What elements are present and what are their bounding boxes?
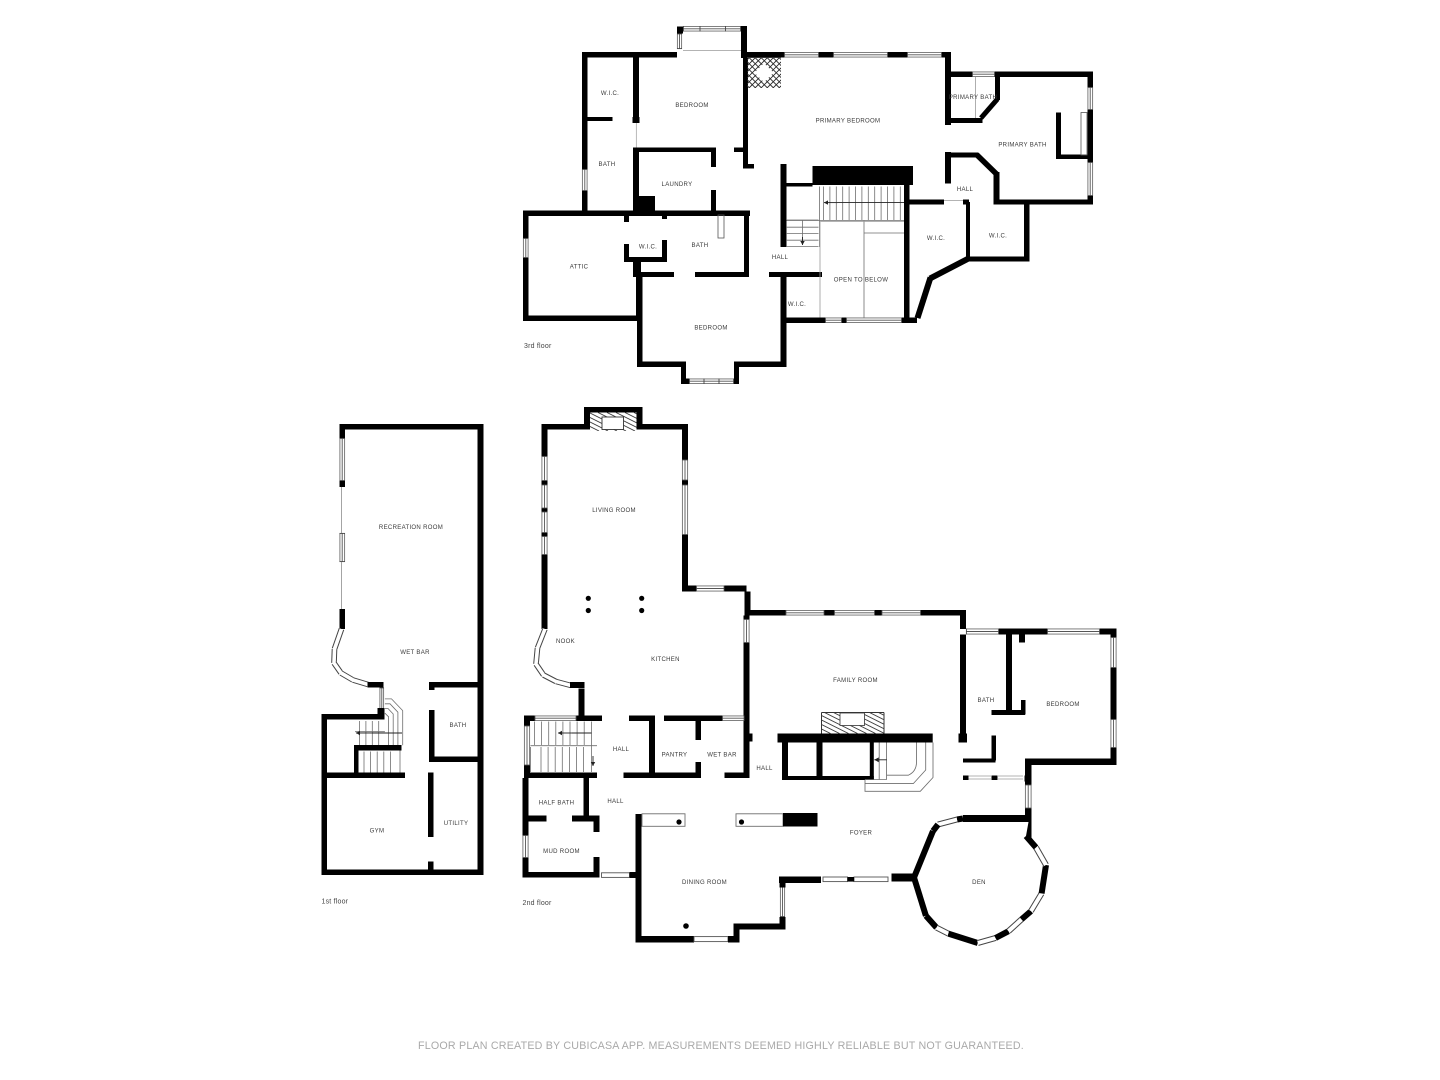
svg-text:HALL: HALL [613,747,630,753]
svg-text:FOYER: FOYER [850,831,873,837]
svg-text:GYM: GYM [370,829,385,835]
svg-text:3rd floor: 3rd floor [524,343,552,350]
svg-text:PRIMARY BATH: PRIMARY BATH [949,95,997,101]
svg-text:WET BAR: WET BAR [707,753,737,759]
svg-text:MUD ROOM: MUD ROOM [543,849,580,855]
svg-text:BEDROOM: BEDROOM [1046,702,1079,708]
svg-text:W.I.C.: W.I.C. [927,236,945,242]
svg-text:BEDROOM: BEDROOM [694,326,727,332]
svg-text:BATH: BATH [599,162,616,168]
svg-text:PRIMARY BEDROOM: PRIMARY BEDROOM [816,119,881,125]
svg-text:HALL: HALL [607,799,624,805]
svg-text:W.I.C.: W.I.C. [601,91,619,97]
svg-text:FLOOR PLAN CREATED BY CUBICASA: FLOOR PLAN CREATED BY CUBICASA APP. MEAS… [418,1040,1024,1052]
svg-text:KITCHEN: KITCHEN [651,657,680,663]
svg-text:LIVING ROOM: LIVING ROOM [592,508,636,514]
svg-text:HALL: HALL [756,766,773,772]
svg-text:PRIMARY BATH: PRIMARY BATH [998,143,1046,149]
svg-text:1st floor: 1st floor [322,899,349,906]
svg-text:W.I.C.: W.I.C. [989,234,1007,240]
svg-text:BATH: BATH [450,723,467,729]
svg-text:2nd floor: 2nd floor [523,900,553,907]
svg-text:W.I.C.: W.I.C. [788,302,806,308]
svg-text:HALL: HALL [957,187,974,193]
svg-text:WET BAR: WET BAR [400,650,430,656]
svg-text:HALL: HALL [772,255,789,261]
svg-text:LAUNDRY: LAUNDRY [662,182,693,188]
svg-text:W.I.C.: W.I.C. [639,245,657,251]
svg-text:HALF BATH: HALF BATH [539,801,575,807]
svg-text:FAMILY ROOM: FAMILY ROOM [833,678,878,684]
svg-text:DINING ROOM: DINING ROOM [682,880,727,886]
svg-text:BATH: BATH [978,698,995,704]
svg-text:OPEN TO BELOW: OPEN TO BELOW [834,278,888,284]
svg-text:PANTRY: PANTRY [662,753,688,759]
svg-text:NOOK: NOOK [556,639,575,645]
svg-text:UTILITY: UTILITY [444,821,469,827]
svg-text:DEN: DEN [972,880,986,886]
svg-text:ATTIC: ATTIC [570,265,589,271]
svg-text:BEDROOM: BEDROOM [675,103,708,109]
svg-text:RECREATION ROOM: RECREATION ROOM [379,525,443,531]
svg-text:BATH: BATH [692,243,709,249]
